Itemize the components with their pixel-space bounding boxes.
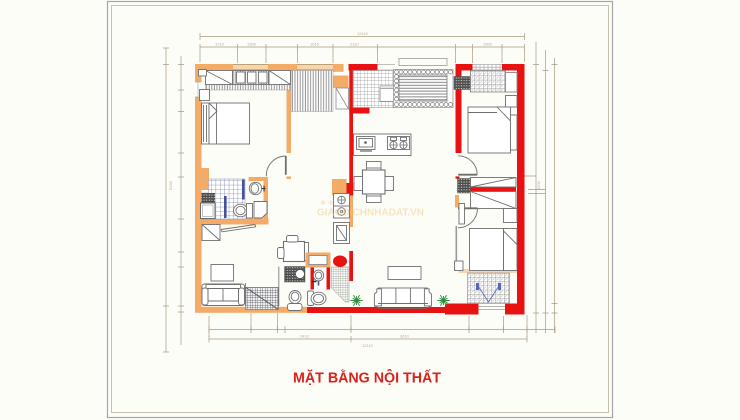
svg-text:GIAODICHNHADAT.VN: GIAODICHNHADAT.VN: [317, 208, 424, 219]
svg-text:3610: 3610: [400, 334, 410, 339]
svg-text:12110: 12110: [357, 31, 369, 36]
svg-text:✱ ✱: ✱ ✱: [320, 199, 334, 207]
svg-text:2410: 2410: [300, 334, 310, 339]
svg-text:2110: 2110: [350, 42, 359, 47]
svg-text:MẶT BẰNG NỘI THẤT: MẶT BẰNG NỘI THẤT: [293, 369, 441, 387]
svg-text:1300: 1300: [247, 42, 257, 47]
svg-text:1300: 1300: [483, 42, 493, 47]
svg-text:12110: 12110: [362, 343, 374, 348]
svg-text:9150: 9150: [168, 180, 173, 190]
svg-text:3200: 3200: [536, 180, 541, 190]
svg-text:1710: 1710: [215, 42, 225, 47]
svg-text:1610: 1610: [310, 42, 320, 47]
